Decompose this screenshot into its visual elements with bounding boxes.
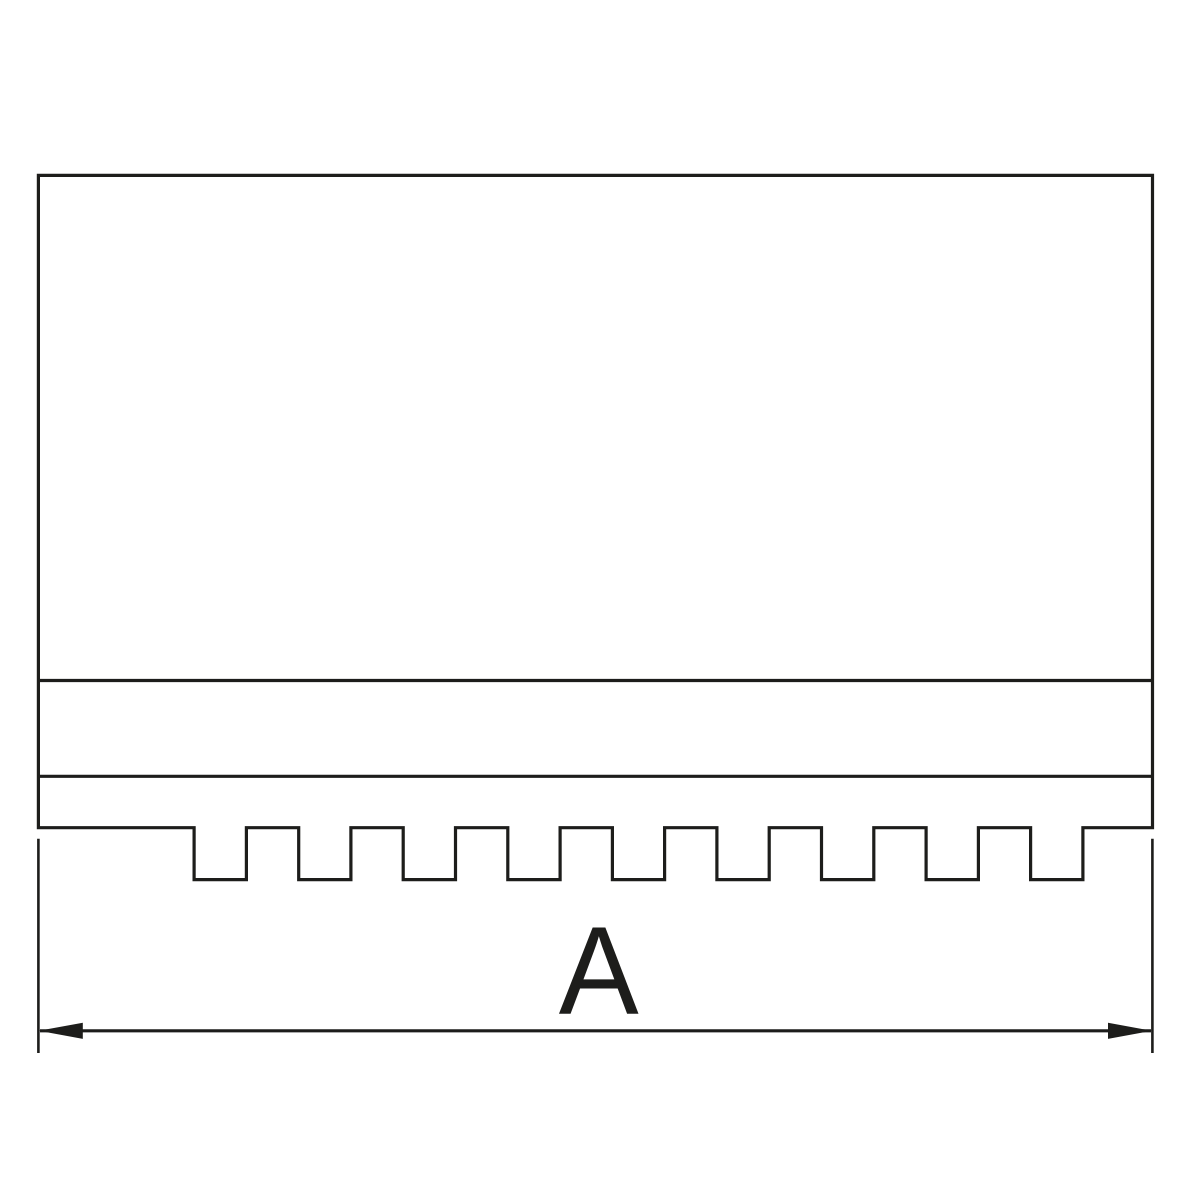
svg-text:A: A <box>559 900 639 1041</box>
